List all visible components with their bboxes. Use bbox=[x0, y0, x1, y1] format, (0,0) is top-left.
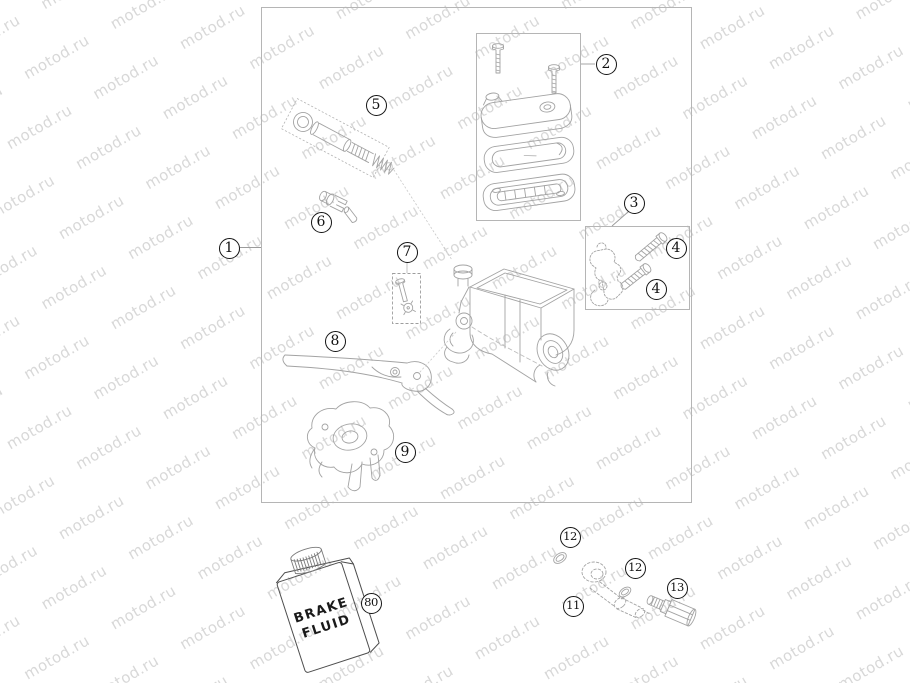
reservoir-cover-drawing bbox=[478, 83, 573, 140]
piston-axis-dotted-line bbox=[394, 170, 452, 260]
reservoir-plate-drawing bbox=[483, 136, 576, 174]
parts-linework: BRAKE FLUID bbox=[269, 44, 697, 673]
clamp-bracket-drawing bbox=[590, 243, 623, 306]
reservoir-membrane-drawing bbox=[482, 173, 577, 213]
callout-3-leader bbox=[612, 212, 628, 226]
parts-diagram-page: motod.rumotod.rumotod.rumotod.rumotod.ru… bbox=[0, 0, 910, 683]
frame-boxes bbox=[262, 8, 692, 503]
clamp-bolt-upper-drawing bbox=[633, 231, 669, 263]
clamp-kit-box bbox=[586, 227, 690, 310]
seal-ring-left-drawing bbox=[552, 550, 569, 565]
master-cylinder-body-drawing bbox=[444, 265, 575, 386]
lever-guard-drawing bbox=[307, 402, 393, 491]
clamp-bolt-lower-drawing bbox=[619, 262, 653, 291]
brake-fluid-bottle-drawing: BRAKE FLUID bbox=[269, 536, 381, 673]
leader-lines bbox=[240, 64, 628, 248]
pivot-pin-drawing bbox=[395, 277, 416, 314]
brake-lever-drawing bbox=[283, 332, 456, 415]
diagram-artwork: BRAKE FLUID bbox=[0, 0, 910, 683]
clevis-piece-drawing bbox=[315, 189, 362, 223]
reservoir-screw-drawing bbox=[493, 44, 560, 93]
piston-kit-drawing bbox=[281, 99, 401, 184]
hex-plug-drawing bbox=[644, 591, 698, 627]
banjo-fitting-drawing bbox=[582, 562, 650, 619]
